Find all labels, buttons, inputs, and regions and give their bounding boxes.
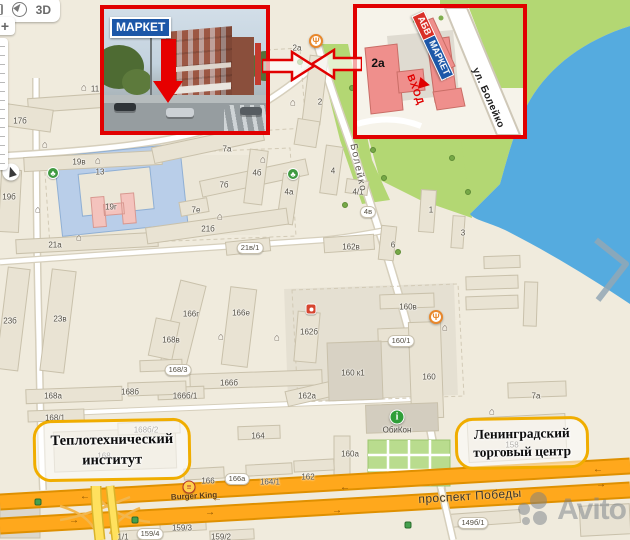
callout-institute: Теплотехнический институт bbox=[32, 418, 191, 483]
map-screenshot: 11117б1319в19б19г21а23б23в7а7б7е4б4а21б2… bbox=[0, 0, 630, 540]
right-pointing-arrow bbox=[262, 52, 314, 80]
callout-trade-center: Ленинградский торговый центр bbox=[455, 416, 590, 470]
avito-watermark: Avito bbox=[518, 492, 626, 528]
zoom-in-button[interactable]: + bbox=[0, 17, 15, 35]
car bbox=[114, 103, 136, 111]
callout-trade-line1: Ленинградский bbox=[474, 425, 570, 444]
vertical-sign bbox=[255, 43, 261, 85]
red-arrow-head bbox=[153, 81, 183, 103]
obikon-label: ОбиКон bbox=[383, 426, 412, 435]
inset-building-2a-label: 2а bbox=[371, 56, 384, 70]
callout-institute-line1: Теплотехнический bbox=[50, 429, 173, 451]
car bbox=[240, 107, 262, 115]
rotate-compass-icon[interactable] bbox=[12, 2, 27, 17]
inset-map-detail: 2а АБВ МАРКЕТ ВХОД ул. Болейко bbox=[353, 4, 527, 139]
car bbox=[166, 108, 194, 117]
red-arrow bbox=[161, 39, 176, 83]
ruler-icon[interactable] bbox=[0, 4, 3, 15]
callout-trade-line2: торговый центр bbox=[473, 442, 571, 461]
zoom-slider[interactable] bbox=[0, 38, 8, 170]
building-wing bbox=[232, 37, 254, 101]
left-pointing-arrow bbox=[312, 50, 362, 78]
sign-market: МАРКЕТ bbox=[110, 17, 171, 38]
tree bbox=[122, 69, 152, 95]
tree bbox=[439, 16, 444, 21]
callout-institute-line2: институт bbox=[82, 449, 142, 470]
avito-logo-icon bbox=[518, 492, 554, 528]
inset-photo: АБВ МАРКЕТ bbox=[100, 5, 270, 135]
avito-text: Avito bbox=[557, 493, 626, 527]
mode-3d-button[interactable]: 3D bbox=[36, 3, 51, 17]
inset-connector-arrows bbox=[262, 48, 362, 84]
